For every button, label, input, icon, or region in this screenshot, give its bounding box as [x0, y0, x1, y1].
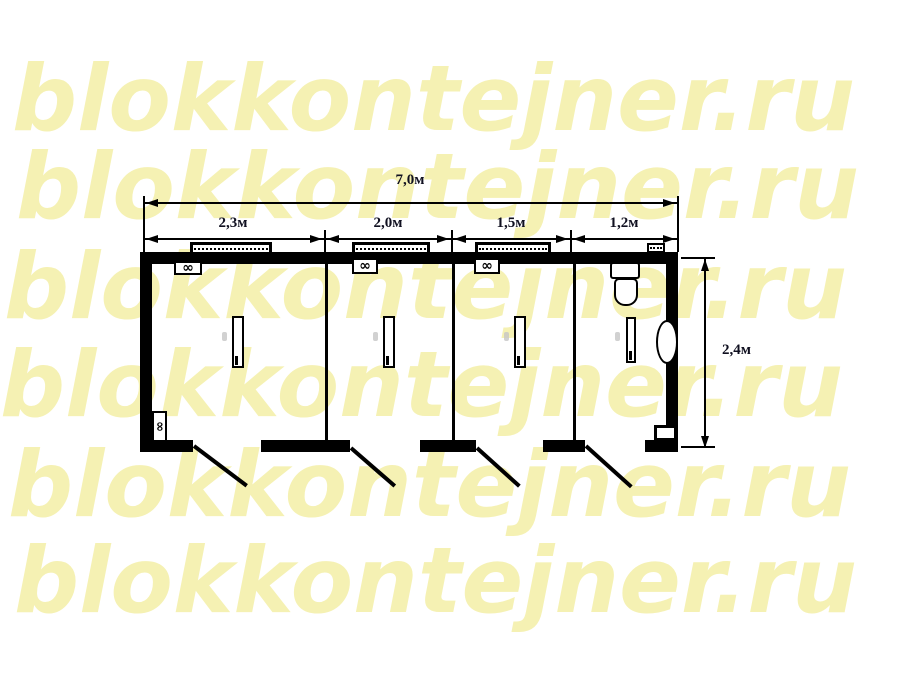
extension-line	[570, 230, 572, 252]
bottom-wall-segment	[420, 440, 476, 452]
heater-glyph: ∞	[481, 258, 493, 274]
dimension-arrow	[663, 235, 675, 243]
vent-window-symbol	[647, 243, 665, 253]
partition-wall	[325, 264, 328, 440]
section-width-label: 1,5м	[481, 215, 541, 231]
window-symbol	[190, 242, 272, 255]
bottom-wall-segment	[645, 440, 678, 452]
dimension-arrow	[454, 235, 466, 243]
dimension-arrow	[701, 436, 709, 448]
panel-glyph: ∞	[152, 421, 167, 432]
radiator-symbol	[626, 317, 636, 363]
extension-line	[681, 257, 715, 259]
window-symbol	[352, 242, 430, 255]
dimension-arrow	[146, 235, 158, 243]
faint-mark	[373, 332, 378, 341]
extension-line	[451, 230, 453, 252]
faint-mark	[615, 332, 620, 341]
faint-mark	[504, 332, 509, 341]
dimension-arrow	[573, 235, 585, 243]
extension-line	[681, 446, 715, 448]
heater-icon: ∞	[474, 258, 500, 274]
window-glazing-hatch	[479, 248, 547, 250]
bottom-wall-segment	[543, 440, 585, 452]
dimension-arrow	[663, 199, 675, 207]
section-width-label: 1,2м	[594, 215, 654, 231]
total-dimension-line	[143, 202, 679, 204]
radiator-tick	[629, 351, 632, 360]
section-dimension-line	[143, 238, 679, 240]
watermark-row: blokkontejner.ru	[14, 536, 857, 628]
toilet-tank-icon	[610, 262, 640, 279]
watermark-row: blokkontejner.ru	[0, 340, 843, 432]
step-block	[654, 425, 677, 441]
watermark-row: blokkontejner.ru	[12, 54, 855, 146]
partition-wall	[452, 264, 455, 440]
window-symbol	[475, 242, 551, 255]
dimension-arrow	[146, 199, 158, 207]
section-width-label: 2,0м	[358, 215, 418, 231]
sink-icon	[656, 320, 678, 364]
total-width-label: 7,0м	[380, 172, 440, 188]
heater-icon: ∞	[352, 258, 378, 274]
floor-plan-canvas: blokkontejner.ru blokkontejner.ru blokko…	[0, 0, 900, 675]
heater-icon: ∞	[174, 261, 202, 275]
dimension-arrow	[556, 235, 568, 243]
extension-line	[677, 196, 679, 252]
window-glazing-hatch	[650, 247, 662, 249]
heater-glyph: ∞	[359, 258, 371, 274]
electrical-panel-icon: ∞	[152, 411, 167, 442]
left-wall	[140, 252, 152, 452]
radiator-symbol	[514, 316, 526, 368]
dimension-arrow	[701, 259, 709, 271]
partition-wall	[573, 264, 576, 440]
faint-mark	[222, 332, 227, 341]
watermark-row: blokkontejner.ru	[8, 440, 851, 532]
dimension-arrow	[437, 235, 449, 243]
radiator-symbol	[383, 316, 395, 368]
window-glazing-hatch	[356, 248, 426, 250]
radiator-tick	[517, 356, 520, 365]
dimension-arrow	[327, 235, 339, 243]
radiator-tick	[235, 356, 238, 365]
height-dimension-line	[704, 259, 706, 448]
extension-line	[143, 196, 145, 252]
window-glazing-hatch	[194, 248, 268, 250]
radiator-symbol	[232, 316, 244, 368]
height-label: 2,4м	[722, 342, 772, 358]
dimension-arrow	[310, 235, 322, 243]
heater-glyph: ∞	[182, 260, 194, 276]
toilet-bowl-icon	[614, 278, 638, 306]
section-width-label: 2,3м	[203, 215, 263, 231]
extension-line	[324, 230, 326, 252]
radiator-tick	[386, 356, 389, 365]
bottom-wall-segment	[261, 440, 350, 452]
